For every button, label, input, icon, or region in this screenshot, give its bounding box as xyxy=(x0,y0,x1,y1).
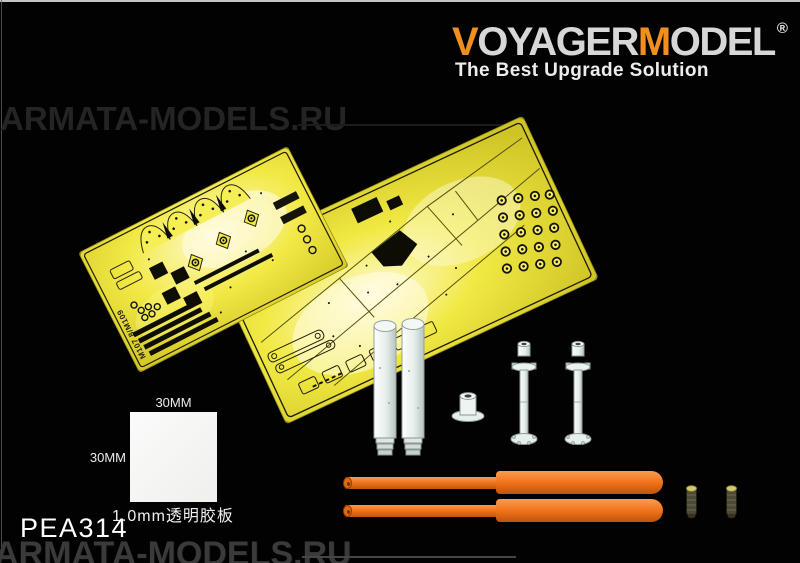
orange-rod-2-thin-section xyxy=(345,505,498,517)
brand-logo-wordmark: VOYAGERMODEL® xyxy=(452,9,788,62)
watermark-line-bottom xyxy=(302,556,516,558)
brass-turned-part-1 xyxy=(684,484,699,521)
sheet-material-note: 1.0mm透明胶板 xyxy=(112,502,234,526)
product-photo: VOYAGERMODEL® The Best Upgrade Solution … xyxy=(0,0,800,563)
logo-letters-odel: ODEL xyxy=(670,20,775,64)
logo-letters-oyager: OYAGER xyxy=(477,20,638,64)
resin-post-1 xyxy=(509,340,539,450)
logo-letter-m: M xyxy=(638,20,670,64)
watermark-text-mid: ARMATA-MODELS.RU xyxy=(0,100,347,138)
resin-post-2 xyxy=(563,340,593,450)
template-square xyxy=(130,412,217,502)
orange-rod-2-tip xyxy=(343,505,352,517)
square-height-label: 30MM xyxy=(62,451,126,465)
brand-logo: VOYAGERMODEL® The Best Upgrade Solution xyxy=(452,9,788,81)
brand-tagline: The Best Upgrade Solution xyxy=(452,61,788,81)
orange-rod-1-thin-section xyxy=(345,477,498,489)
photo-top-edge-line xyxy=(0,0,800,2)
orange-rod-2-tip-hole xyxy=(347,510,350,514)
watermark-text-bottom: ARMATA-MODELS.RU xyxy=(0,535,352,563)
resin-cylinder-1 xyxy=(371,318,399,458)
orange-rod-2-thick-section xyxy=(496,499,663,522)
watermark-line-mid xyxy=(298,124,522,126)
orange-rod-1-tip-hole xyxy=(347,482,350,486)
brass-turned-part-2 xyxy=(724,484,739,521)
resin-cylinder-2 xyxy=(399,316,427,458)
registered-trademark-icon: ® xyxy=(777,20,788,37)
orange-rod-1-thick-section xyxy=(496,471,663,494)
resin-flanged-bushing xyxy=(449,391,487,423)
orange-rod-1-tip xyxy=(343,477,352,489)
square-width-label: 30MM xyxy=(130,396,217,410)
logo-letter-v: V xyxy=(452,20,477,64)
photo-left-edge-line xyxy=(1,0,2,563)
